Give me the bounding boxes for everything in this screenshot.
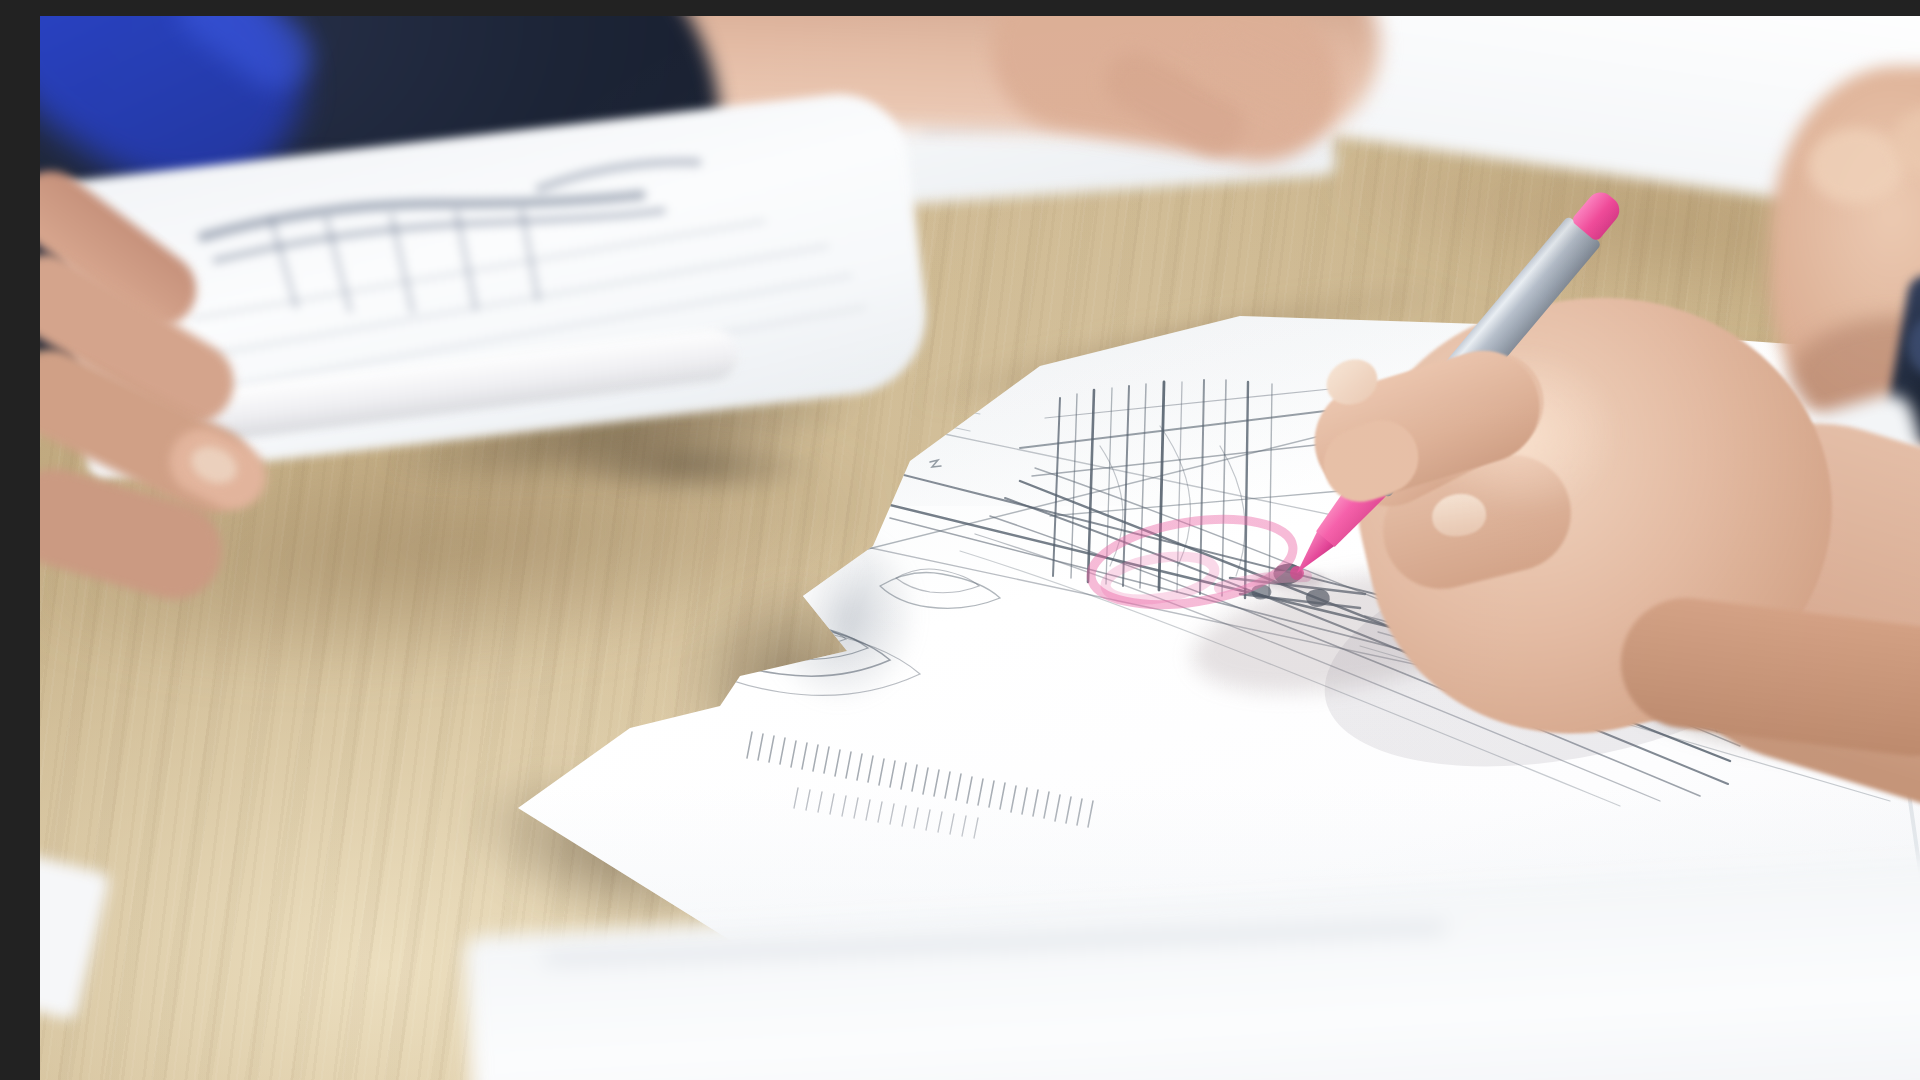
fist-knuckle	[1808, 128, 1904, 204]
paper-cast-shadow	[560, 436, 820, 496]
paper-fold-line	[545, 924, 1445, 963]
photo-design-sketch-meeting	[40, 16, 1920, 1080]
marker-tip-shadow	[1256, 572, 1326, 588]
